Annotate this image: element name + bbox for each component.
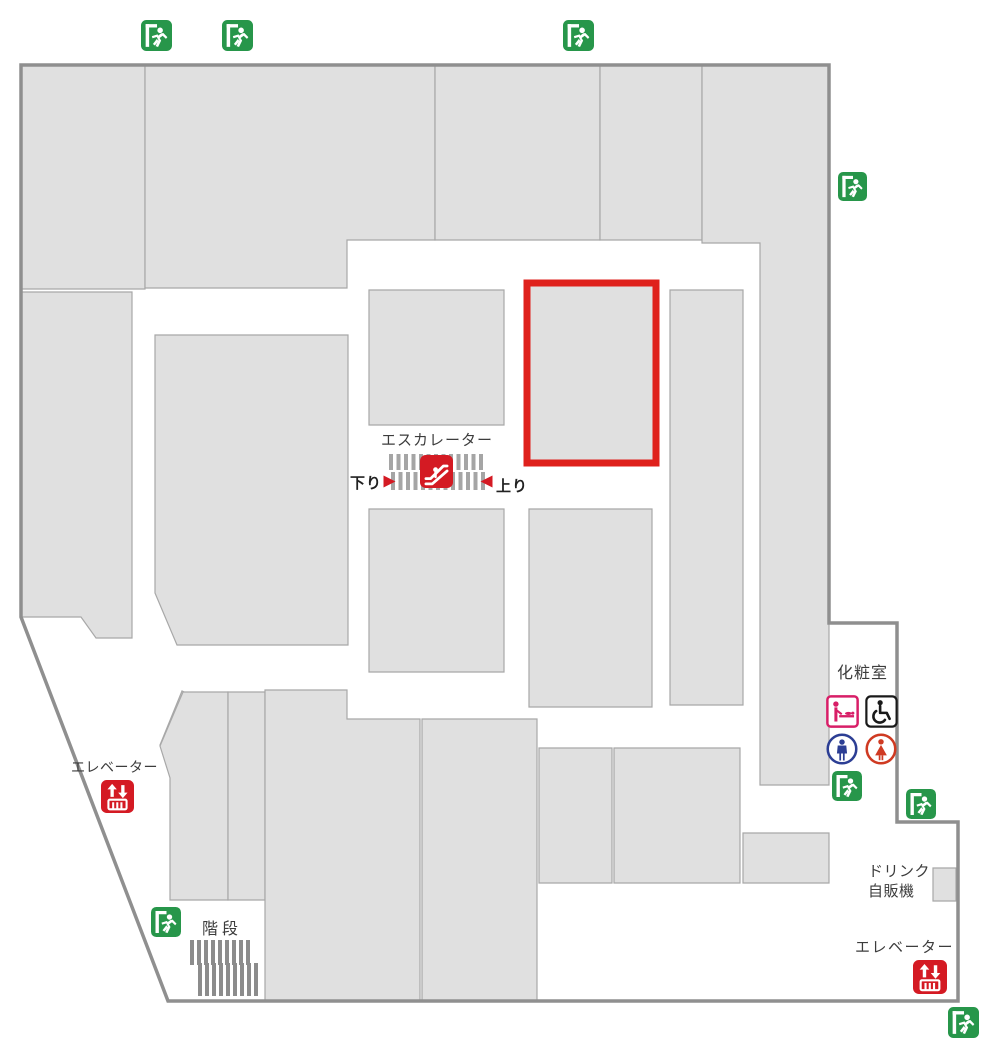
store-block [435, 65, 600, 240]
store-block [160, 692, 228, 900]
store-block [265, 690, 420, 1001]
elevator-icon [101, 780, 134, 813]
escalator-down-label: 下り [344, 472, 382, 493]
wheelchair-accessible-icon [866, 696, 896, 726]
store-block [743, 833, 829, 883]
stairs-hatch-top [190, 940, 250, 965]
vending-machine-label-line1: ドリンク [868, 862, 930, 882]
store-block [21, 65, 145, 289]
store-block [529, 509, 652, 707]
escalator-icon [420, 455, 453, 488]
womens-restroom-icon [867, 735, 896, 764]
store-block [21, 292, 132, 638]
escalator-up-label: 上り [496, 475, 528, 496]
emergency-exit-icon [838, 172, 867, 201]
escalator-label: エスカレーター [378, 429, 496, 450]
store-block [145, 65, 435, 288]
emergency-exit-icon [832, 771, 862, 801]
emergency-exit-icon [906, 789, 936, 819]
store-block [369, 509, 504, 672]
store-block [539, 748, 612, 883]
emergency-exit-icon [151, 907, 181, 937]
store-block [614, 748, 740, 883]
store-block [369, 290, 504, 425]
emergency-exit-icon [948, 1007, 979, 1038]
emergency-exit-icon [141, 20, 172, 51]
stairs-hatch-bottom [198, 963, 258, 996]
elevator-right-label: エレベーター [855, 936, 954, 957]
vending-machine-label: ドリンク 自販機 [868, 862, 930, 902]
elevator-left-label: エレベーター [71, 757, 158, 777]
restroom-label: 化粧室 [837, 659, 888, 683]
store-block [600, 65, 702, 240]
store-block [670, 290, 743, 705]
emergency-exit-icon [222, 20, 253, 51]
emergency-exit-icon [563, 20, 594, 51]
highlighted-store-block[interactable] [527, 283, 656, 463]
store-block [933, 868, 956, 901]
store-block [155, 335, 348, 645]
elevator-icon [913, 960, 947, 994]
floor-map-svg [0, 0, 1000, 1057]
mens-restroom-icon [828, 735, 857, 764]
vending-machine-label-line2: 自販機 [868, 882, 930, 902]
floor-map: エスカレーター 下り 上り エレベーター 階段 化粧室 ドリンク 自販機 エレベ… [0, 0, 1000, 1057]
stairs-label: 階段 [202, 915, 242, 939]
baby-changing-icon [827, 696, 857, 726]
store-block [422, 719, 537, 1001]
store-block [228, 692, 265, 900]
